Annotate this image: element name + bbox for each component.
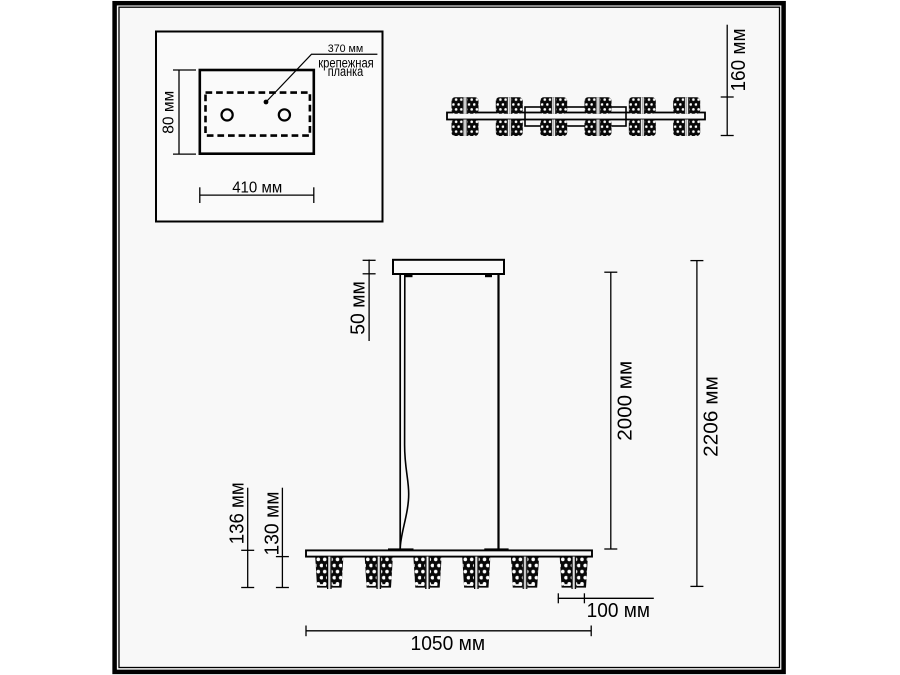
svg-text:1050 мм: 1050 мм bbox=[411, 633, 486, 655]
svg-text:2206 мм: 2206 мм bbox=[701, 376, 723, 457]
svg-text:100 мм: 100 мм bbox=[587, 600, 650, 622]
svg-text:136 мм: 136 мм bbox=[227, 482, 249, 544]
svg-text:планка: планка bbox=[328, 64, 364, 79]
svg-text:80 мм: 80 мм bbox=[161, 91, 178, 134]
svg-text:160 мм: 160 мм bbox=[728, 29, 750, 92]
svg-text:130 мм: 130 мм bbox=[262, 492, 284, 556]
svg-text:370 мм: 370 мм bbox=[328, 43, 364, 55]
svg-text:50 мм: 50 мм bbox=[348, 281, 370, 335]
svg-text:410 мм: 410 мм bbox=[232, 179, 282, 196]
svg-text:2000 мм: 2000 мм bbox=[615, 361, 637, 441]
